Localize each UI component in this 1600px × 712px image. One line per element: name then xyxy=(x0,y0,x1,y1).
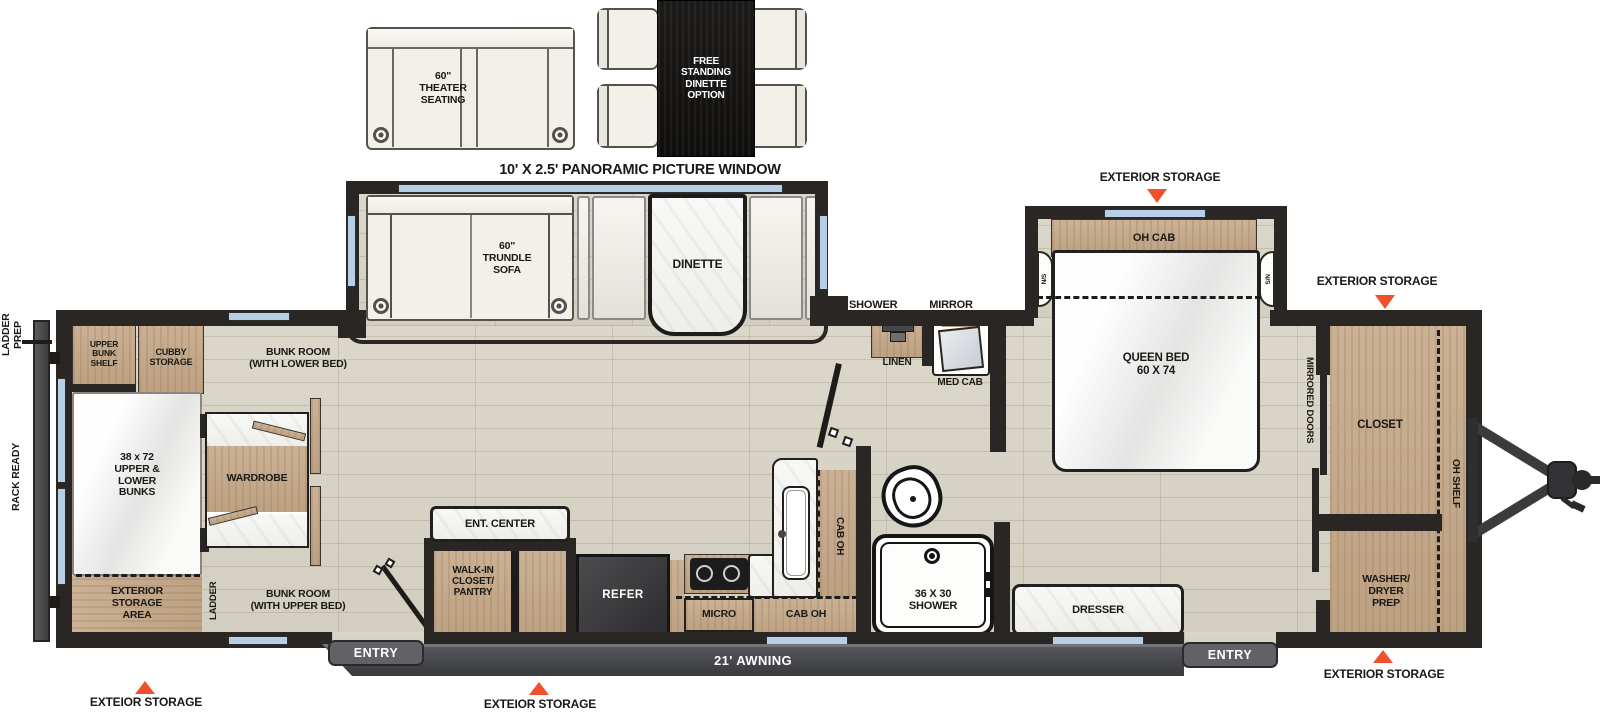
kitchen-window xyxy=(766,636,848,645)
shower-drain-icon xyxy=(924,548,940,564)
slide-side-window xyxy=(819,215,828,290)
free-standing-dinette-table: FREE STANDING DINETTE OPTION xyxy=(657,0,755,157)
dresser-window xyxy=(1052,636,1144,645)
dinette-bench xyxy=(592,196,646,320)
exterior-storage-mid-bottom-label: EXTEIOR STORAGE xyxy=(455,698,625,711)
ladder-label: LADDER xyxy=(209,570,225,632)
callout-triangle-icon xyxy=(1375,295,1395,309)
bedroom-slide-window xyxy=(1104,209,1206,218)
theater-seating-option: 60" THEATER SEATING xyxy=(366,27,575,150)
wall-bed-bath xyxy=(990,316,1006,452)
exterior-storage-front-bottom-label: EXTERIOR STORAGE xyxy=(1299,668,1469,681)
mirrored-door-wall xyxy=(1316,320,1330,375)
oh-shelf-label: OH SHELF xyxy=(1444,444,1461,522)
med-cab-vanity xyxy=(932,318,990,376)
mirrored-doors-label: MIRRORED DOORS xyxy=(1297,328,1314,473)
ent-center-cap xyxy=(424,538,434,638)
washer-dryer-label: WASHER/ DRYER PREP xyxy=(1344,574,1428,609)
callout-triangle-icon xyxy=(529,682,549,695)
queen-bed-label: QUEEN BED 60 X 74 xyxy=(1104,352,1208,378)
bunk-room-upper-label: BUNK ROOM (WITH UPPER BED) xyxy=(224,589,372,613)
mirrored-door-panel xyxy=(1312,468,1319,572)
free-standing-dinette-label: FREE STANDING DINETTE OPTION xyxy=(662,56,750,101)
upper-bunk-shelf: UPPER BUNK SHELF xyxy=(72,322,136,386)
wardrobe-door-panel xyxy=(310,486,321,566)
ladder-prep-label: LADDER PREP xyxy=(1,291,31,379)
cupholder-icon xyxy=(373,298,389,314)
mirror-icon xyxy=(938,326,984,372)
bunk-room-lower-label: BUNK ROOM (WITH LOWER BED) xyxy=(224,347,372,371)
dinette-bench xyxy=(749,196,803,320)
bunk-room-window xyxy=(228,312,290,321)
mirrored-door-wall xyxy=(1316,600,1330,634)
exterior-storage-top-label: EXTERIOR STORAGE xyxy=(1075,171,1245,184)
closet-shelf-divider xyxy=(1312,514,1442,531)
bed-slide-wall-left xyxy=(1025,206,1038,318)
theater-seating-label: 60" THEATER SEATING xyxy=(378,71,508,106)
panoramic-window-label: 10' X 2.5' PANORAMIC PICTURE WINDOW xyxy=(450,162,830,178)
faucet-icon xyxy=(778,530,786,538)
med-cab-label: MED CAB xyxy=(928,377,992,388)
nightstand-right: N/S xyxy=(1259,251,1275,307)
wall-kitchen-bath xyxy=(856,446,871,636)
cab-oh-dashed-line xyxy=(676,596,858,599)
wall-bottom-front xyxy=(1276,632,1468,648)
dresser-label: DRESSER xyxy=(1072,604,1124,616)
shower-36x30-label: 36 X 30 SHOWER xyxy=(880,588,986,613)
callout-triangle-icon xyxy=(135,681,155,694)
callout-triangle-icon xyxy=(1147,189,1167,203)
entry-door-left: ENTRY xyxy=(328,640,424,666)
walk-in-label: WALK-IN CLOSET/ PANTRY xyxy=(436,565,510,599)
outside-shower-nozzle-icon xyxy=(890,332,906,342)
cupholder-icon xyxy=(551,298,567,314)
ladder-prep-tick xyxy=(22,340,52,344)
micro-label: MICRO xyxy=(702,609,736,621)
wall-top-rear xyxy=(56,310,354,326)
shower-36x30: 36 X 30 SHOWER xyxy=(872,534,994,636)
rear-wall-window xyxy=(57,378,66,483)
closet-label: CLOSET xyxy=(1338,419,1422,432)
panoramic-window xyxy=(398,184,783,193)
entry-right-label: ENTRY xyxy=(1208,648,1252,662)
wardrobe-label: WARDROBE xyxy=(227,473,288,485)
bunks-label: 38 x 72 UPPER & LOWER BUNKS xyxy=(80,452,194,499)
rack-mount xyxy=(50,352,60,364)
wardrobe-door-panel xyxy=(310,398,321,474)
bottom-window xyxy=(228,636,288,645)
exterior-storage-rear-bottom-label: EXTEIOR STORAGE xyxy=(61,696,231,709)
kitchen-sink xyxy=(782,486,810,580)
ns-right-label: N/S xyxy=(1263,274,1270,284)
slide-side-window xyxy=(347,215,356,287)
ns-left-label: N/S xyxy=(1041,274,1048,284)
dinette-table: DINETTE xyxy=(648,194,747,336)
wall-bottom-rear xyxy=(56,632,332,648)
walk-in-closet-pantry: WALK-IN CLOSET/ PANTRY xyxy=(434,551,566,636)
refrigerator: REFER xyxy=(576,554,670,636)
cooktop xyxy=(684,554,754,594)
callout-triangle-icon xyxy=(1373,650,1393,663)
bunk-storage-divider xyxy=(76,574,200,577)
exterior-storage-area-label: EXTERIOR STORAGE AREA xyxy=(80,586,194,621)
trundle-sofa: 60" TRUNDLE SOFA xyxy=(366,195,574,321)
bedroom-slide-edge xyxy=(1037,296,1261,299)
rear-wall-window xyxy=(57,488,66,585)
oh-cab-label: OH CAB xyxy=(1133,232,1175,244)
trailer-hitch xyxy=(1468,406,1600,552)
wall-shower-bedroom xyxy=(994,522,1010,636)
refer-label: REFER xyxy=(602,589,643,602)
ent-center-label: ENT. CENTER xyxy=(465,518,535,530)
dinette-chair xyxy=(597,84,659,148)
ent-center: ENT. CENTER xyxy=(430,506,570,542)
cab-oh-upper-label: CAB OH xyxy=(828,500,845,572)
linen-label: LINEN xyxy=(871,357,923,368)
dresser: DRESSER xyxy=(1012,584,1184,636)
upper-bunk-shelf-label: UPPER BUNK SHELF xyxy=(90,340,118,369)
wall-top-front xyxy=(1270,310,1468,326)
cupholder-icon xyxy=(373,127,389,143)
rack-ready-label: RACK READY xyxy=(11,424,29,530)
dinette-bench xyxy=(577,196,590,320)
cupholder-icon xyxy=(552,127,568,143)
cab-oh-lower-label: CAB OH xyxy=(768,609,844,621)
entry-door-right: ENTRY xyxy=(1182,642,1278,668)
dinette-label: DINETTE xyxy=(673,258,723,271)
theater-back xyxy=(368,29,573,49)
exterior-storage-front-side-label: EXTERIOR STORAGE xyxy=(1292,275,1462,288)
rack-mount xyxy=(50,596,60,608)
mirrored-door-panel xyxy=(1320,375,1327,475)
ent-center-cap xyxy=(566,538,576,638)
dinette-chair xyxy=(597,8,659,70)
cubby-storage-label: CUBBY STORAGE xyxy=(150,347,193,367)
toilet-drain-icon xyxy=(910,496,916,502)
awning-label: 21' AWNING xyxy=(714,654,792,669)
bike-rack-bar xyxy=(33,320,50,642)
microwave: MICRO xyxy=(684,598,754,632)
rv-floorplan: 60" THEATER SEATING FREE STANDING DINETT… xyxy=(0,0,1600,712)
awning-bar: 21' AWNING xyxy=(322,644,1184,676)
entry-left-label: ENTRY xyxy=(354,646,398,660)
trundle-sofa-label: 60" TRUNDLE SOFA xyxy=(442,241,572,276)
bed-slide-wall-right xyxy=(1274,206,1287,318)
oh-shelf-dashed-line xyxy=(1437,330,1440,632)
bunk-shelf-band xyxy=(72,384,136,392)
cubby-storage: CUBBY STORAGE xyxy=(138,320,204,394)
